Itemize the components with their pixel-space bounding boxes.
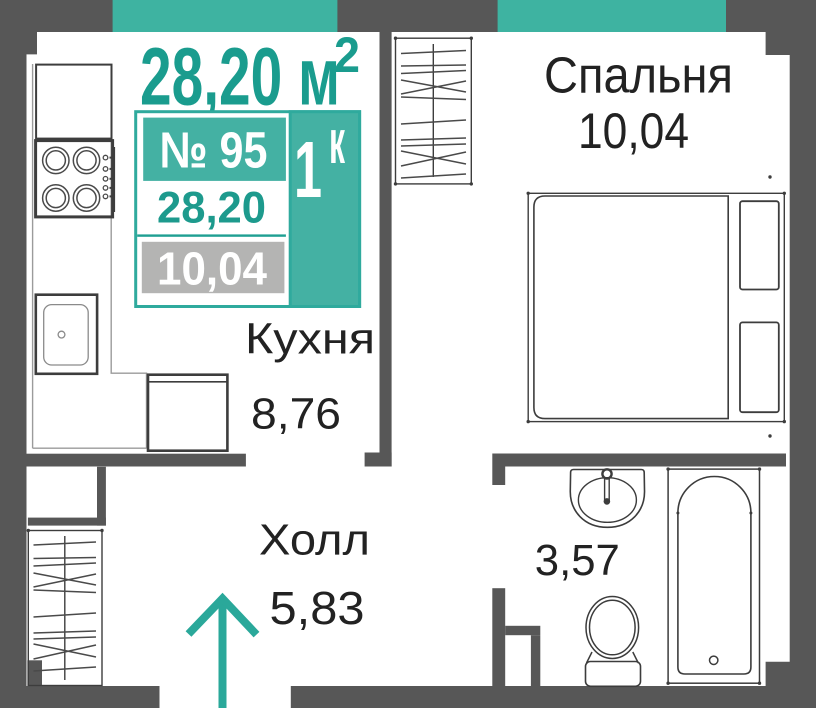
svg-text:Холл: Холл bbox=[259, 516, 370, 565]
svg-text:к: к bbox=[329, 108, 345, 177]
svg-text:2: 2 bbox=[334, 27, 360, 83]
svg-text:28,20: 28,20 bbox=[157, 184, 266, 233]
svg-text:28,20 м: 28,20 м bbox=[140, 32, 340, 123]
svg-text:10,04: 10,04 bbox=[157, 242, 267, 294]
svg-text:Кухня: Кухня bbox=[245, 316, 375, 364]
svg-text:8,76: 8,76 bbox=[251, 390, 341, 439]
svg-text:10,04: 10,04 bbox=[578, 103, 689, 159]
svg-text:№ 95: № 95 bbox=[160, 122, 268, 179]
svg-text:3,57: 3,57 bbox=[535, 536, 620, 585]
svg-text:1: 1 bbox=[294, 125, 322, 214]
svg-text:5,83: 5,83 bbox=[270, 582, 365, 634]
svg-text:Спальня: Спальня bbox=[544, 47, 733, 104]
